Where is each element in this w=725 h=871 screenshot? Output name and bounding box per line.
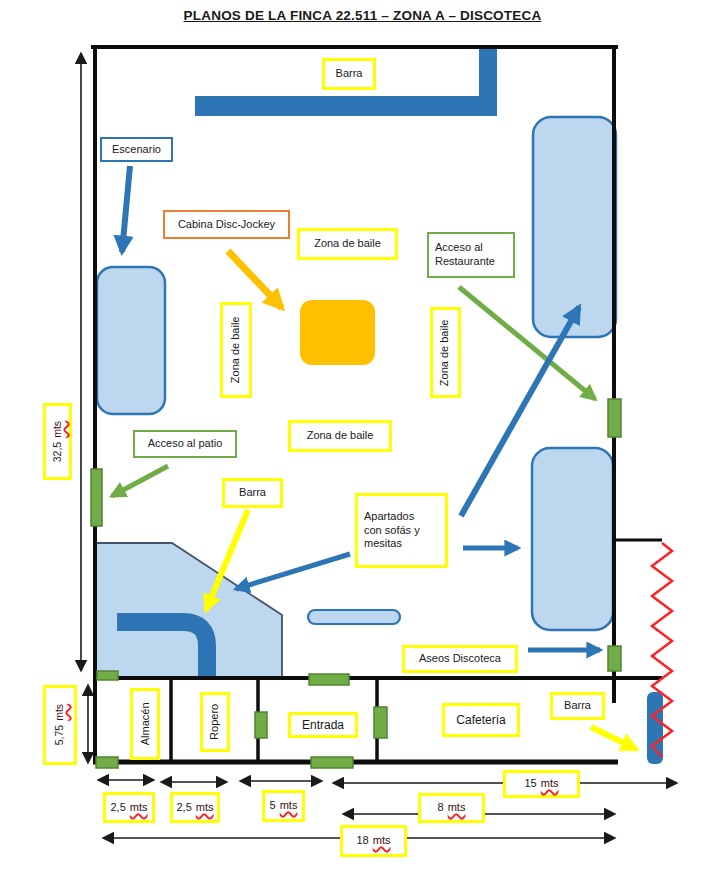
dim-label-cafeteria-width: 15mts xyxy=(503,770,580,798)
label-ropero: Ropero xyxy=(200,692,230,752)
label-cabina-dj: Cabina Disc-Jockey xyxy=(163,210,290,239)
dim-label-total-width: 18mts xyxy=(340,825,407,857)
arrow-barra-cafeteria xyxy=(591,727,636,749)
dim-label-entrada-width: 5mts xyxy=(262,790,305,822)
label-barra-central: Barra xyxy=(222,478,283,508)
label-entrada: Entrada xyxy=(288,712,358,738)
door-entrada-cafeteria xyxy=(374,707,387,738)
label-zona-baile-right: Zona de baile xyxy=(430,307,461,398)
door-entrada-inner xyxy=(309,674,349,685)
label-cafeteria: Cafetería xyxy=(442,703,520,737)
door-ropero-entrada xyxy=(255,712,267,738)
dim-label-almacen-width: 2,5mts xyxy=(103,792,155,823)
label-barra-cafeteria: Barra xyxy=(550,692,605,720)
stage-area-shape xyxy=(97,267,165,414)
label-zona-baile-center: Zona de baile xyxy=(288,420,392,452)
arrow-apartados-to-corner-area xyxy=(236,554,350,589)
label-acceso-patio: Acceso al patio xyxy=(133,430,237,458)
label-zona-baile-top: Zona de baile xyxy=(297,228,398,260)
door-almacen-top xyxy=(97,671,118,680)
label-zona-baile-left: Zona de baile xyxy=(220,302,252,398)
bar-corner-area-shape xyxy=(95,543,282,677)
dim-label-ropero-width: 2,5mts xyxy=(170,792,220,823)
door-restaurante-right-wall xyxy=(608,399,621,437)
sofa-booth-top-right-shape xyxy=(533,117,616,337)
label-acceso-restaurante: Acceso al Restaurante xyxy=(427,232,515,278)
label-barra-top: Barra xyxy=(322,58,376,90)
door-entrada-street xyxy=(311,757,353,768)
dim-label-strip-height: 5,75mts xyxy=(43,685,77,765)
arrow-cabina-to-dj-square xyxy=(228,251,282,308)
label-apartados: Apartados con sofás y mesitas xyxy=(355,493,448,568)
door-patio-left-wall xyxy=(91,469,102,526)
dim-label-right-section-width: 8mts xyxy=(418,793,485,823)
sofa-booth-bottom-right-shape xyxy=(532,448,613,630)
dj-booth-square xyxy=(300,300,375,365)
floor-plan-page: PLANOS DE LA FINCA 22.511 – ZONA A – DIS… xyxy=(0,0,725,871)
page-title: PLANOS DE LA FINCA 22.511 – ZONA A – DIS… xyxy=(0,8,725,23)
cafeteria-bar-counter xyxy=(647,692,663,764)
top-bar-counter xyxy=(195,96,497,116)
arrow-escenario-to-stage xyxy=(122,166,130,252)
dim-label-total-height: 32,5mts xyxy=(43,403,72,480)
arrow-acceso-patio xyxy=(112,466,168,496)
label-escenario: Escenario xyxy=(100,137,173,162)
door-almacen-bottom xyxy=(96,757,118,768)
label-almacen: Almacén xyxy=(130,688,160,760)
label-aseos-discoteca: Aseos Discoteca xyxy=(402,645,518,673)
door-aseos-right-wall xyxy=(608,646,621,671)
small-sofa-shape xyxy=(308,610,400,624)
top-bar-counter-return xyxy=(479,45,497,116)
